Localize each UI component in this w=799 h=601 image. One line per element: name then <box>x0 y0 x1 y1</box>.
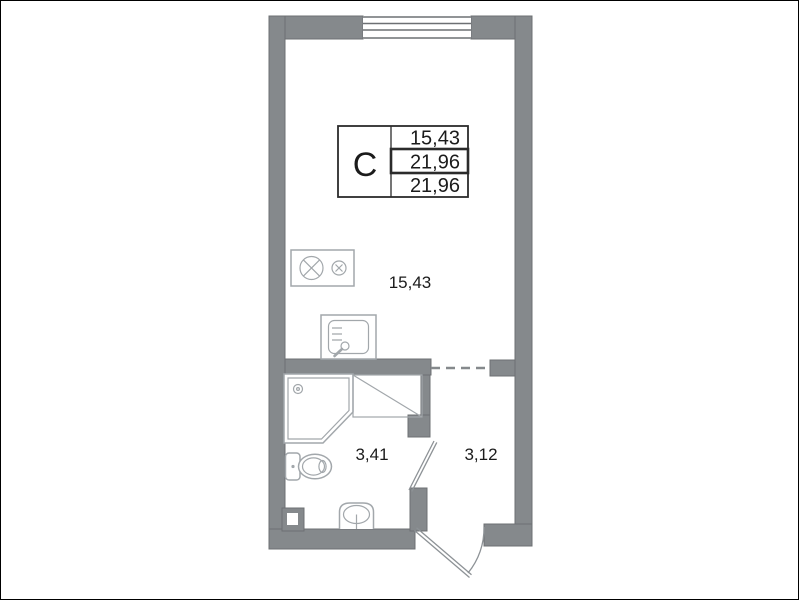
apartment-info-table: С 15,43 21,96 21,96 <box>338 126 468 197</box>
stove-icon <box>291 250 354 286</box>
legend-living-area: 15,43 <box>410 128 460 150</box>
wall-bottom-right-corner <box>484 524 532 546</box>
floor-plan: 15,43 3,41 3,12 С 15,43 21,96 21,96 <box>1 1 799 601</box>
wall-left <box>269 16 285 549</box>
shower-icon <box>284 374 353 443</box>
wall-hall-stub <box>490 360 515 376</box>
wall-bottom <box>269 529 415 549</box>
bathroom-door-icon <box>409 441 437 491</box>
entrance-door-icon <box>415 527 485 578</box>
wall-kitchen-bath <box>285 359 431 375</box>
wall-right <box>515 16 532 546</box>
legend-total-area-2: 21,96 <box>410 175 460 197</box>
room-label-hallway: 3,12 <box>464 445 497 464</box>
closet-icon <box>353 375 422 417</box>
wall-door-pier <box>408 415 430 437</box>
apartment-type-letter: С <box>353 146 378 184</box>
toilet-icon <box>286 453 332 480</box>
washbasin-icon <box>340 503 374 529</box>
vent-shaft-inner <box>287 513 298 525</box>
kitchen-sink-icon <box>321 315 376 359</box>
wall-bath-lower <box>410 488 427 531</box>
room-label-living: 15,43 <box>389 273 432 292</box>
window-icon <box>363 16 471 39</box>
legend-total-area: 21,96 <box>410 152 460 174</box>
floor-plan-page: 15,43 3,41 3,12 С 15,43 21,96 21,96 <box>0 0 799 600</box>
room-label-bathroom: 3,41 <box>355 445 388 464</box>
